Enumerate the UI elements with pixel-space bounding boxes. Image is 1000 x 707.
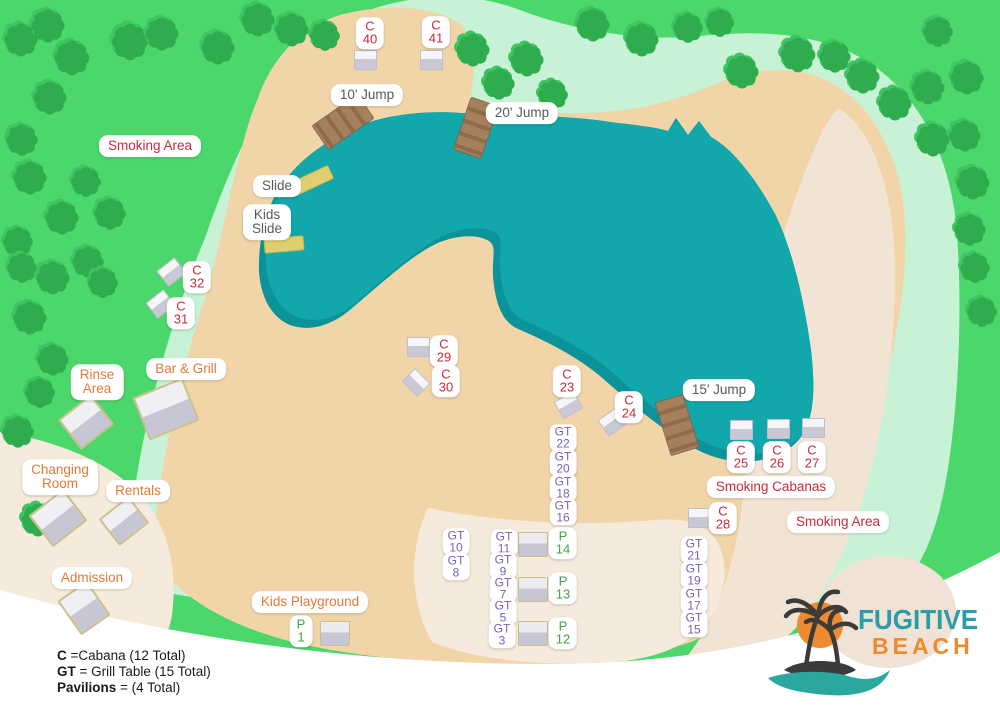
light-path-center	[414, 508, 724, 664]
legend-pavilions: Pavilions = (4 Total)	[57, 680, 211, 696]
logo: FUGITIVE BEACH	[755, 570, 1000, 707]
logo-subtitle: BEACH	[872, 633, 974, 660]
beach-map: C40C41C32C31C29C30C23C24C25C26C27C28GT22…	[0, 0, 1000, 707]
legend-grill-table: GT = Grill Table (15 Total)	[57, 664, 211, 680]
legend-cabana: C =Cabana (12 Total)	[57, 648, 211, 664]
logo-title: FUGITIVE	[858, 604, 978, 636]
map-legend: C =Cabana (12 Total) GT = Grill Table (1…	[57, 648, 211, 697]
